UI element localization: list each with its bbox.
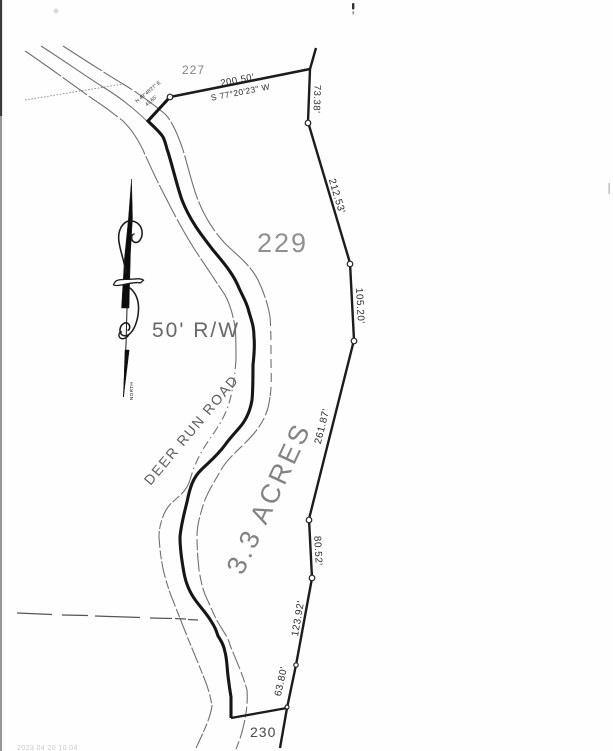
svg-text:73.38': 73.38' (311, 85, 323, 114)
svg-text:NORTH: NORTH (129, 382, 134, 400)
svg-text:50' R/W: 50' R/W (152, 319, 240, 342)
svg-text:80.52': 80.52' (311, 536, 324, 566)
svg-text:227: 227 (182, 63, 205, 77)
svg-text:2023 04 20 10 04: 2023 04 20 10 04 (17, 745, 78, 751)
svg-text:DEER RUN ROAD: DEER RUN ROAD (141, 372, 242, 488)
svg-text:229: 229 (257, 228, 308, 258)
svg-text:105.20': 105.20' (353, 288, 366, 325)
svg-text:63.80': 63.80' (273, 666, 290, 698)
svg-text:230: 230 (250, 724, 276, 740)
svg-text:3.3 ACRES: 3.3 ACRES (221, 418, 317, 579)
